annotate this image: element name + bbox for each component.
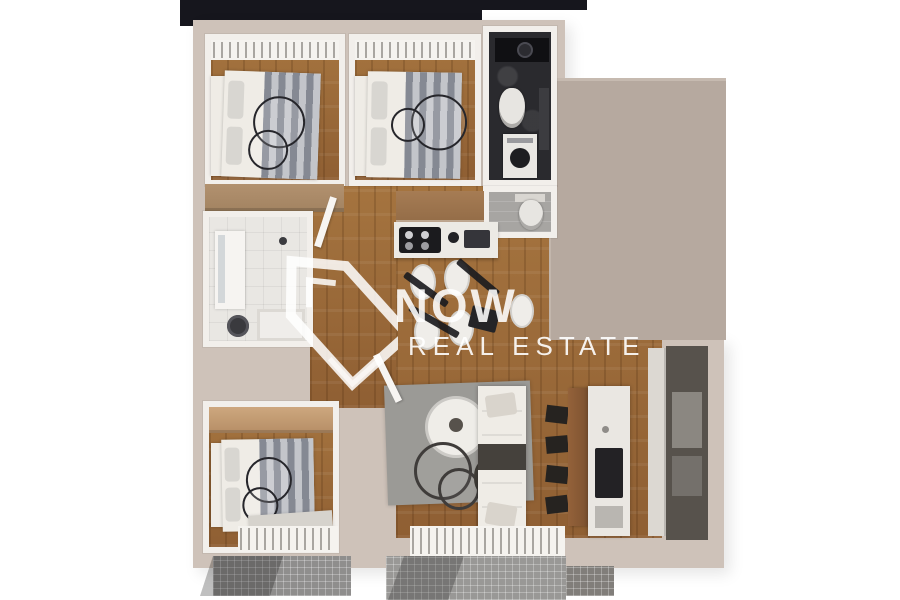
pillow (224, 447, 240, 481)
kitchen-island (588, 386, 630, 536)
pillow (371, 81, 388, 119)
wardrobe-top (205, 184, 344, 212)
washing-machine (503, 134, 537, 178)
burner (421, 242, 429, 250)
balcony-shadow (200, 556, 283, 596)
balcony-left (213, 556, 351, 596)
bathroom-dark (483, 26, 557, 186)
toilet (499, 88, 525, 128)
sofa-throw (478, 444, 526, 470)
burner (421, 231, 429, 239)
tall-marble-unit (648, 348, 666, 536)
island-panel (595, 506, 623, 528)
balcony-shadow (388, 556, 464, 600)
kitchen-upper-cabinet (396, 191, 484, 223)
table-decor-dot (449, 418, 463, 432)
vanity-mirror (218, 235, 225, 303)
bedroom-1 (205, 34, 345, 186)
bar-counter-wood (568, 388, 588, 526)
cooktop (399, 227, 441, 253)
island-faucet (602, 426, 609, 433)
floor-plan-3d-render: NOW REAL ESTATE (0, 0, 900, 600)
living-room-window (410, 526, 565, 556)
burner (405, 242, 413, 250)
bar-stool (545, 495, 569, 515)
sofa (478, 386, 526, 536)
bedroom-2-bed (366, 71, 462, 179)
sink-tray (464, 230, 490, 248)
washer-controls (507, 138, 533, 143)
burner (405, 231, 413, 239)
washer-door (510, 148, 530, 168)
bedroom-2-window (355, 40, 475, 60)
house-outline-icon (276, 224, 398, 402)
balcony-middle (386, 556, 566, 600)
bar-stool (545, 435, 568, 454)
balcony-right-stub (566, 566, 614, 596)
kettle (448, 232, 459, 243)
watermark-title: NOW (394, 282, 518, 329)
bedroom-1-bed (221, 70, 321, 179)
sofa-pillow (485, 392, 518, 418)
island-cooktop (595, 448, 623, 498)
bedroom-3-wardrobe (209, 407, 333, 433)
bar-stool (545, 465, 569, 484)
roof-shadow-band-thin (480, 0, 587, 10)
cabinet-panel (672, 456, 702, 496)
pillow (227, 80, 244, 119)
tall-cabinets-dark (666, 346, 708, 540)
bar-stool (545, 405, 569, 425)
sink-basin (517, 42, 533, 58)
bedroom-3-window (238, 526, 338, 552)
toilet (519, 200, 543, 230)
bedroom-1-window (211, 40, 339, 60)
pillow (370, 127, 387, 165)
pillow (226, 126, 243, 165)
sink-basin-round (227, 315, 249, 337)
shower-shelf (539, 88, 549, 150)
roof-terrace (549, 78, 726, 340)
pillow (225, 487, 241, 521)
bedroom-2 (349, 34, 481, 186)
cabinet-panel (672, 392, 702, 448)
watermark-subtitle: REAL ESTATE (408, 333, 645, 359)
